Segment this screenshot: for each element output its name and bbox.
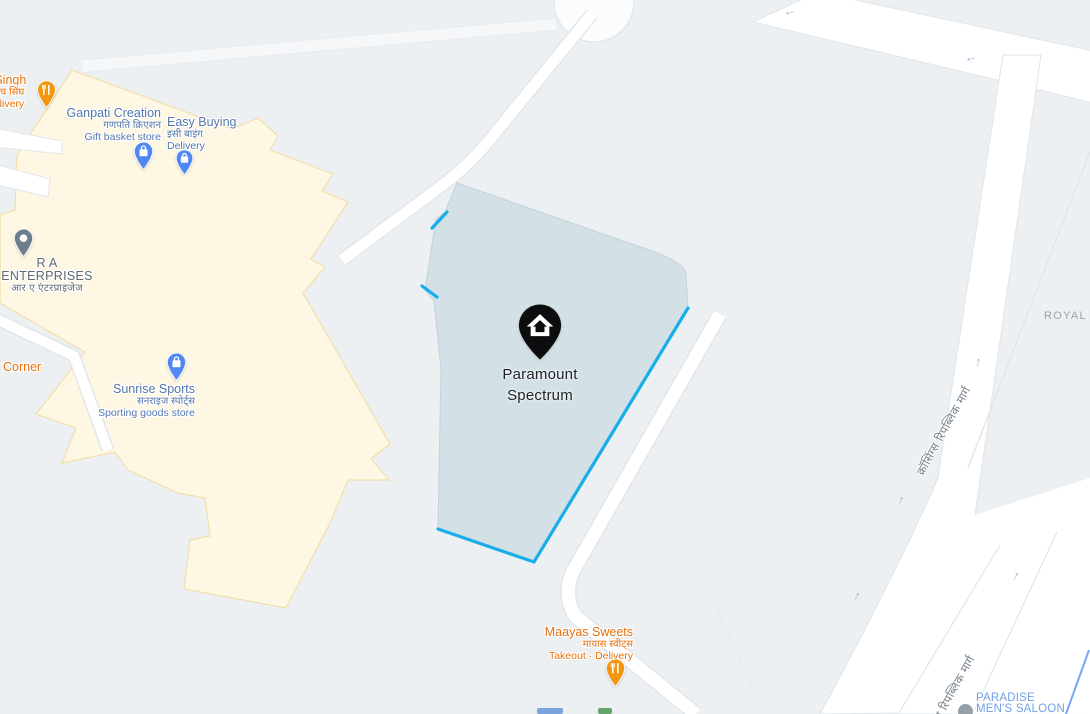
poi-native-name: सनराइज स्पोर्ट्स [95, 396, 195, 408]
cutoff-label-fragment [537, 708, 563, 714]
poi-title: Ganpati Creation [61, 107, 161, 120]
poi-label-ganpati-creation[interactable]: Ganpati Creation गणपति क्रिएशन Gift bask… [61, 107, 161, 143]
salon-pin-icon[interactable] [957, 703, 974, 714]
poi-native-name: आर ए एंटरप्राइजेज [0, 283, 94, 295]
poi-detail: · Delivery [0, 99, 38, 111]
map-canvas[interactable]: ch Singh सैंडविच सिंघ · Delivery Ganpati… [0, 0, 1090, 714]
shopping-pin-icon[interactable] [175, 149, 194, 176]
poi-native-name: गणपति क्रिएशन [61, 120, 161, 132]
poi-title-line2: MEN'S SALOON [976, 704, 1065, 714]
plot-label-line1: Paramount [465, 364, 615, 385]
one-way-arrow-icon: ← [963, 49, 979, 65]
plot-marker-label[interactable]: Paramount Spectrum [465, 364, 615, 406]
business-pin-icon[interactable] [13, 228, 34, 258]
poi-label-corner[interactable]: Corner [3, 361, 41, 374]
poi-label-singh[interactable]: ch Singh सैंडविच सिंघ · Delivery [0, 74, 38, 110]
poi-detail: Sporting goods store [95, 408, 195, 420]
poi-title: Easy Buying [167, 116, 277, 129]
poi-title: Sunrise Sports [95, 383, 195, 396]
poi-label-easy-buying[interactable]: Easy Buying इसी बाइंग Delivery [167, 116, 277, 152]
plot-label-line2: Spectrum [465, 385, 615, 406]
poi-native-name: मायास स्वीट्स [523, 639, 633, 651]
poi-title: Maayas Sweets [523, 626, 633, 639]
poi-title: R A ENTERPRISES [0, 257, 94, 283]
poi-native-name: सैंडविच सिंघ [0, 87, 38, 99]
shopping-pin-icon[interactable] [133, 141, 154, 171]
poi-native-name: इसी बाइंग [167, 129, 277, 141]
poi-label-ra-enterprises[interactable]: R A ENTERPRISES आर ए एंटरप्राइजेज [0, 257, 94, 295]
one-way-arrow-icon: ← [782, 3, 798, 19]
restaurant-pin-icon[interactable] [36, 80, 57, 109]
poi-title: PARADISE [976, 693, 1065, 704]
shopping-pin-icon[interactable] [166, 352, 187, 382]
home-pin-icon[interactable] [518, 303, 562, 361]
poi-label-paradise-saloon[interactable]: PARADISE MEN'S SALOON [976, 693, 1065, 714]
cutoff-label-fragment [598, 708, 612, 714]
poi-title: ch Singh [0, 74, 38, 87]
area-label-royal: ROYAL M [1044, 310, 1090, 322]
restaurant-pin-icon[interactable] [605, 658, 626, 688]
poi-label-sunrise-sports[interactable]: Sunrise Sports सनराइज स्पोर्ट्स Sporting… [95, 383, 195, 419]
poi-title: Corner [3, 361, 41, 374]
poi-label-maayas-sweets[interactable]: Maayas Sweets मायास स्वीट्स Takeout · De… [523, 626, 633, 662]
